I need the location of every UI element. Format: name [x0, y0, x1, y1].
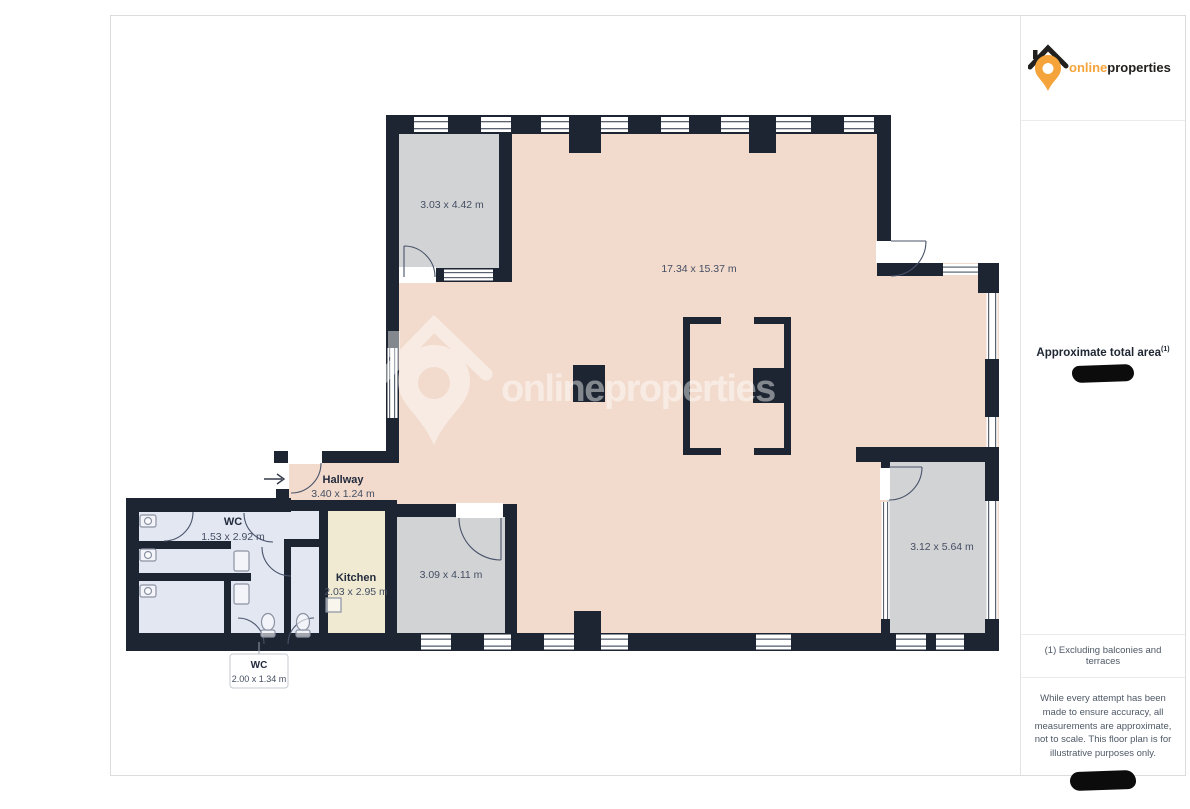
- room-hallway-dims: 3.40 x 1.24 m: [311, 488, 375, 500]
- footnote: (1) Excluding balconies and terraces: [1021, 634, 1185, 678]
- room-hallway-name: Hallway: [323, 474, 365, 486]
- room-bottom-gray-dims: 3.09 x 4.11 m: [420, 569, 483, 581]
- room-main-dims: 17.34 x 15.37 m: [661, 263, 737, 275]
- entry-arrow-icon: [264, 474, 284, 484]
- disclaimer-text: While every attempt has been made to ens…: [1031, 692, 1175, 761]
- watermark-text: onlineproperties: [501, 368, 775, 410]
- wc-callout-dims: 2.00 x 1.34 m: [232, 674, 287, 684]
- logo-text: onlineproperties: [1069, 60, 1171, 75]
- total-area-label: Approximate total area(1): [1021, 346, 1185, 359]
- redacted-area-value: [1072, 364, 1135, 383]
- room-kitchen-name: Kitchen: [336, 572, 377, 584]
- disclaimer-block: While every attempt has been made to ens…: [1021, 692, 1185, 790]
- floor-plan: onlineproperties 3.03 x 4.42 m 17.34 x 1…: [111, 16, 1021, 776]
- logo: onlineproperties: [1021, 16, 1185, 121]
- room-wc-name: WC: [224, 516, 242, 528]
- sidebar: onlineproperties Approximate total area(…: [1020, 16, 1185, 775]
- redacted-text: [1070, 770, 1137, 791]
- wc-callout-name: WC: [251, 660, 268, 671]
- room-right-gray-dims: 3.12 x 5.64 m: [910, 541, 974, 553]
- room-wc-dims: 1.53 x 2.92 m: [201, 531, 265, 543]
- room-top-left-dims: 3.03 x 4.42 m: [420, 199, 484, 211]
- page-frame: onlineproperties 3.03 x 4.42 m 17.34 x 1…: [110, 15, 1186, 776]
- logo-house-icon: onlineproperties: [1028, 41, 1178, 95]
- total-area-block: Approximate total area(1): [1021, 346, 1185, 382]
- room-kitchen-dims: 2.03 x 2.95 m: [324, 586, 388, 598]
